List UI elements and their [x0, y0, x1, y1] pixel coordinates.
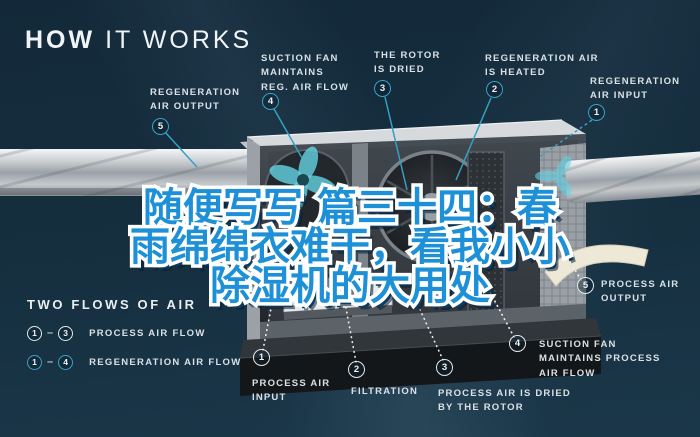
marker-regeneration-5: 5 [152, 118, 169, 135]
legend-heading: TWO FLOWS OF AIR [27, 297, 242, 312]
legend-marker-from: 1 [27, 326, 42, 341]
legend-two-flows: TWO FLOWS OF AIR 1 – 3 PROCESS AIR FLOW … [27, 297, 242, 370]
callout-label-regeneration-air-output: REGENERATION AIR OUTPUT [150, 86, 240, 115]
callout-label-regeneration-air-heated: REGENERATION AIR IS HEATED [485, 52, 599, 81]
callout-label-process-air-output: PROCESS AIR OUTPUT [601, 278, 679, 307]
callout-label-process-air-input: PROCESS AIR INPUT [252, 377, 330, 406]
legend-row-process: 1 – 3 PROCESS AIR FLOW [27, 325, 242, 341]
callout-label-suction-fan-process: SUCTION FAN MAINTAINS PROCESS AIR FLOW [539, 338, 661, 381]
marker-process-1: 1 [253, 349, 270, 366]
marker-process-3: 3 [436, 359, 453, 376]
legend-marker-to: 4 [58, 355, 73, 370]
callout-label-process-air-dried: PROCESS AIR IS DRIED BY THE ROTOR [438, 387, 571, 416]
callout-label-filtration: FILTRATION [351, 385, 418, 399]
page-title-bold: HOW [25, 26, 95, 54]
legend-marker-to: 3 [58, 326, 73, 341]
legend-range-dash: – [47, 327, 53, 339]
marker-process-2: 2 [348, 361, 365, 378]
marker-regeneration-3: 3 [374, 80, 391, 97]
marker-regeneration-2: 2 [486, 81, 503, 98]
page-title: HOW IT WORKS [25, 26, 252, 55]
callout-label-rotor-is-dried: THE ROTOR IS DRIED [374, 49, 441, 78]
legend-row-regeneration: 1 – 4 REGENERATION AIR FLOW [27, 354, 242, 370]
legend-marker-from: 1 [27, 355, 42, 370]
legend-range-dash: – [47, 356, 53, 368]
marker-regeneration-4: 4 [262, 93, 279, 110]
marker-process-5: 5 [577, 277, 594, 294]
infographic-canvas: HOW IT WORKS REGENERATION AIR OUTPUT SUC… [0, 0, 700, 437]
page-title-light [95, 26, 105, 54]
legend-label-process: PROCESS AIR FLOW [89, 328, 206, 339]
callout-label-regeneration-air-input: REGENERATION AIR INPUT [590, 75, 680, 104]
marker-regeneration-1: 1 [588, 104, 605, 121]
marker-process-4: 4 [509, 335, 526, 352]
callout-label-suction-fan-reg: SUCTION FAN MAINTAINS REG. AIR FLOW [261, 52, 349, 95]
legend-label-regeneration: REGENERATION AIR FLOW [89, 357, 241, 368]
